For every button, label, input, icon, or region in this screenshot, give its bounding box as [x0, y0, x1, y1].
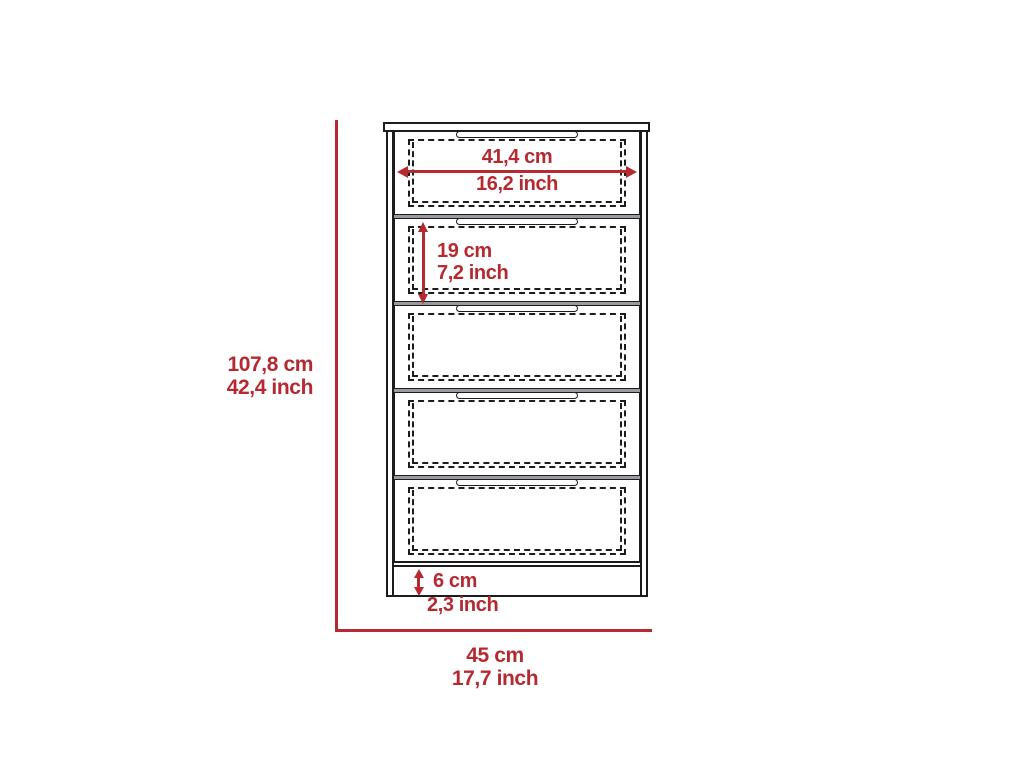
drawer-3 — [394, 305, 640, 389]
drawer-handle — [456, 392, 578, 399]
drawer-handle — [456, 131, 578, 138]
drawer-front-dashed-outline-inner — [412, 403, 622, 464]
drawer-handle — [456, 218, 578, 225]
drawer-5 — [394, 479, 640, 563]
drawer-2 — [394, 218, 640, 302]
arrow-head-up-icon — [414, 569, 424, 578]
drawer-4 — [394, 392, 640, 476]
total-width-label-inch: 17,7 inch — [395, 667, 595, 690]
arrow-head-down-icon — [414, 587, 424, 596]
total-height-label-cm: 107,8 cm — [163, 353, 313, 376]
arrow-head-up-icon — [418, 222, 428, 232]
furniture-dimension-diagram: 41,4 cm 16,2 inch 19 cm 7,2 inch 107,8 c… — [0, 0, 1024, 767]
drawer-handle — [456, 305, 578, 312]
drawer-height-arrow — [422, 230, 425, 296]
total-width-label-cm: 45 cm — [395, 644, 595, 667]
total-width-dimension-line — [335, 629, 652, 632]
total-height-label-inch: 42,4 inch — [163, 376, 313, 399]
total-height-label: 107,8 cm 42,4 inch — [163, 353, 313, 399]
drawer-width-label-cm: 41,4 cm — [397, 147, 637, 168]
drawer-height-label-inch: 7,2 inch — [437, 263, 508, 284]
base-height-label-inch: 2,3 inch — [427, 595, 498, 616]
drawer-front-dashed-outline-inner — [412, 316, 622, 377]
arrow-head-down-icon — [418, 294, 428, 304]
drawer-handle — [456, 479, 578, 486]
base-height-label-cm: 6 cm — [433, 571, 477, 592]
dresser-right-side-panel — [640, 132, 642, 595]
plinth-rail-line — [394, 561, 640, 563]
drawer-front-dashed-outline-inner — [412, 490, 622, 551]
drawer-width-label-inch: 16,2 inch — [397, 174, 637, 195]
total-width-label: 45 cm 17,7 inch — [395, 644, 595, 690]
total-height-dimension-line — [335, 120, 338, 631]
dresser-plinth — [394, 565, 640, 595]
drawer-height-label-cm: 19 cm — [437, 241, 492, 262]
